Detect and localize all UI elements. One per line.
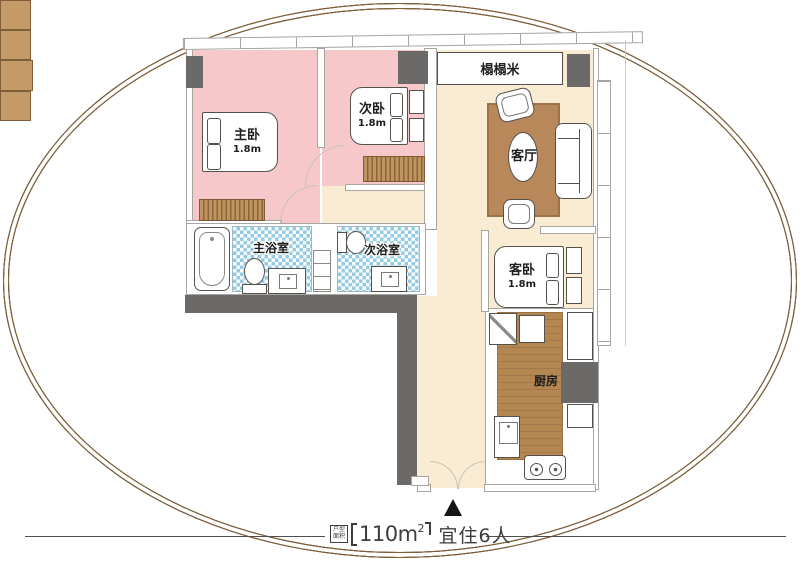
footer-divider-right xyxy=(486,536,786,537)
outer-boundary-line xyxy=(625,40,626,346)
bedside-stool xyxy=(0,0,31,30)
column-bedroom-top xyxy=(398,51,428,84)
second-bathroom-label-box: 次浴室 xyxy=(342,243,422,259)
footer-area-info: 户型面积 110m 2 宜住6人 xyxy=(330,520,512,548)
pillow xyxy=(390,118,403,142)
pillow xyxy=(546,280,559,305)
second-bed: 次卧 1.8m xyxy=(350,87,408,145)
vanity-sink xyxy=(268,268,306,294)
master-bedroom-label: 主卧 xyxy=(234,129,260,144)
bedside-stool xyxy=(0,30,31,60)
master-bedroom-size: 1.8m xyxy=(233,144,261,156)
side-table xyxy=(0,91,31,121)
kitchen-counter xyxy=(567,312,593,360)
stove xyxy=(524,455,566,480)
load-bearing-wall-vertical xyxy=(397,295,417,485)
second-bedroom-label: 次卧 xyxy=(359,103,385,118)
living-room-label: 客厅 xyxy=(511,150,537,165)
pillow xyxy=(207,144,221,170)
master-bed: 主卧 1.8m xyxy=(202,112,278,172)
side-table xyxy=(0,60,33,91)
living-room-label-box: 客厅 xyxy=(492,148,556,166)
bedroom-bench xyxy=(199,199,265,221)
kitchen-label-box: 厨房 xyxy=(516,374,576,390)
master-bathroom-label-box: 主浴室 xyxy=(231,241,311,257)
second-bathroom-label: 次浴室 xyxy=(364,244,400,258)
tatami-label: 榻榻米 xyxy=(480,59,519,78)
second-bedroom-bottom-wall xyxy=(345,184,425,191)
bathroom-cabinet xyxy=(313,250,331,292)
pillow xyxy=(390,93,403,117)
guest-nook-top-wall xyxy=(540,226,596,234)
bathtub xyxy=(194,227,230,291)
burner-icon xyxy=(530,463,543,476)
entrance-arrow-icon xyxy=(444,499,462,516)
right-bracket-icon xyxy=(425,522,431,535)
bedroom-lobby-floor xyxy=(322,186,424,226)
area-box-icon: 户型面积 xyxy=(330,525,348,543)
load-bearing-wall-horizontal xyxy=(185,295,417,313)
sofa xyxy=(555,123,592,199)
guest-bedroom-size: 1.8m xyxy=(508,279,536,291)
toilet xyxy=(242,258,266,294)
right-window-band xyxy=(597,80,611,346)
burner-icon xyxy=(549,463,562,476)
kitchen-counter xyxy=(567,404,593,428)
bathroom-sink xyxy=(371,266,407,292)
column-top-right xyxy=(567,54,590,87)
pillow xyxy=(207,118,221,144)
area-superscript: 2 xyxy=(418,522,425,535)
kitchen-label: 厨房 xyxy=(534,375,558,389)
tatami-platform: 榻榻米 xyxy=(437,52,563,85)
master-bathroom-label: 主浴室 xyxy=(253,242,289,256)
left-bracket-icon xyxy=(351,523,357,546)
bedroom-divider-wall xyxy=(317,48,325,148)
area-value: 110m xyxy=(359,522,418,546)
column-top-left xyxy=(186,56,203,88)
wall-end-notch xyxy=(411,476,429,486)
floorplan-canvas: 主卧 1.8m 次卧 1.8m 榻榻米 xyxy=(0,0,800,561)
kitchen-counter xyxy=(519,315,545,343)
guest-bedroom-label: 客卧 xyxy=(509,264,535,279)
second-bedroom-size: 1.8m xyxy=(358,118,386,130)
nightstand xyxy=(566,277,582,304)
nightstand xyxy=(566,247,582,274)
guest-nook-left-wall xyxy=(481,230,489,312)
kitchen-sink xyxy=(494,416,520,458)
footer-divider-left xyxy=(25,536,325,537)
armchair xyxy=(503,199,535,229)
occupancy-label: 宜住6人 xyxy=(439,521,512,548)
guest-bed: 客卧 1.8m xyxy=(494,246,564,308)
nightstand xyxy=(409,118,424,142)
refrigerator xyxy=(489,313,517,345)
wardrobe xyxy=(363,156,425,182)
nightstand xyxy=(409,90,424,114)
pillow xyxy=(546,253,559,278)
bottom-wall xyxy=(484,484,596,492)
